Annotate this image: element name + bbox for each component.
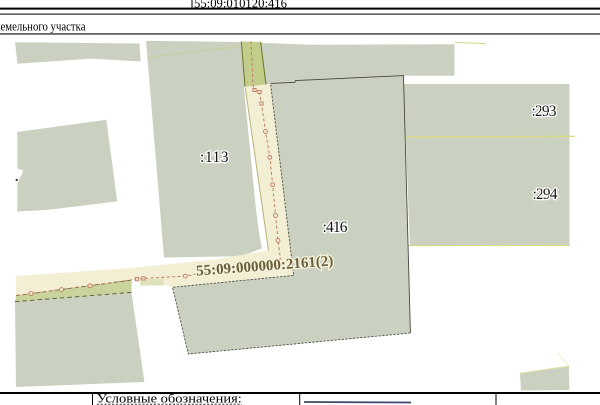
svg-text:емельного участка: емельного участка (1, 20, 86, 34)
svg-text::416: :416 (323, 219, 348, 236)
svg-text:Условные обозначения:: Условные обозначения: (97, 392, 242, 405)
svg-text::294: :294 (533, 186, 558, 203)
svg-text::293: :293 (532, 103, 557, 120)
svg-text::113: :113 (200, 149, 229, 166)
